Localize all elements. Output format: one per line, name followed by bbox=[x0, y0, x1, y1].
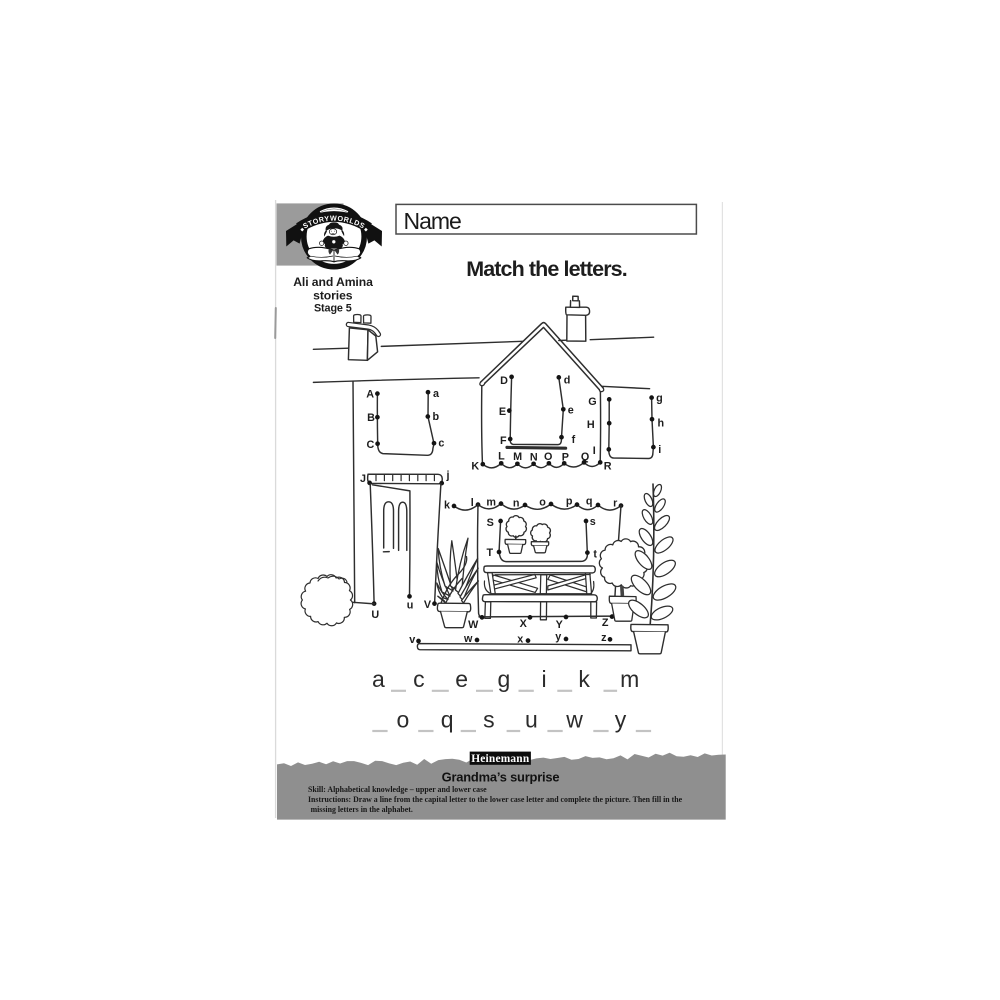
svg-text:c: c bbox=[413, 666, 425, 692]
svg-text:s: s bbox=[590, 516, 596, 528]
svg-text:Ali and Amina: Ali and Amina bbox=[293, 275, 373, 289]
svg-text:c: c bbox=[438, 437, 444, 449]
svg-text:Z: Z bbox=[602, 617, 609, 629]
svg-text:I: I bbox=[593, 445, 596, 457]
svg-text:H: H bbox=[587, 419, 595, 431]
svg-text:h: h bbox=[657, 418, 664, 430]
svg-text:T: T bbox=[486, 547, 493, 559]
svg-text:o: o bbox=[539, 496, 546, 508]
svg-text:k: k bbox=[444, 500, 451, 512]
svg-text:g: g bbox=[656, 393, 663, 405]
svg-text:u: u bbox=[525, 706, 538, 732]
svg-text:Y: Y bbox=[556, 619, 564, 631]
svg-text:M: M bbox=[513, 451, 522, 463]
svg-text:V: V bbox=[424, 599, 432, 611]
svg-text:C: C bbox=[366, 439, 374, 451]
svg-text:w: w bbox=[463, 633, 473, 645]
svg-text:Instructions: Draw a line from: Instructions: Draw a line from the capit… bbox=[308, 795, 683, 804]
svg-text:Skill: Alphabetical knowledge: Skill: Alphabetical knowledge – upper an… bbox=[308, 785, 487, 794]
svg-text:W: W bbox=[468, 619, 479, 631]
svg-text:o: o bbox=[397, 706, 410, 732]
svg-text:missing letters in the alphabe: missing letters in the alphabet. bbox=[311, 805, 413, 814]
svg-text:e: e bbox=[455, 666, 468, 692]
svg-text:Heinemann: Heinemann bbox=[471, 753, 530, 765]
svg-text:p: p bbox=[566, 496, 573, 508]
svg-text:k: k bbox=[578, 666, 590, 692]
svg-text:q: q bbox=[586, 496, 593, 508]
svg-text:s: s bbox=[483, 706, 495, 732]
svg-text:w: w bbox=[565, 706, 583, 732]
svg-text:z: z bbox=[601, 632, 607, 644]
svg-text:A: A bbox=[366, 389, 374, 401]
svg-text:B: B bbox=[367, 412, 375, 424]
svg-text:q: q bbox=[441, 706, 454, 732]
svg-text:X: X bbox=[520, 618, 528, 630]
svg-text:m: m bbox=[620, 666, 639, 692]
svg-text:Grandma’s surprise: Grandma’s surprise bbox=[442, 770, 560, 785]
svg-text:U: U bbox=[371, 609, 379, 621]
svg-text:j: j bbox=[446, 470, 450, 482]
svg-text:Match the letters.: Match the letters. bbox=[466, 257, 627, 281]
svg-text:v: v bbox=[409, 634, 415, 646]
svg-text:a: a bbox=[433, 388, 440, 400]
svg-text:J: J bbox=[360, 473, 366, 485]
svg-text:R: R bbox=[604, 460, 612, 472]
svg-text:G: G bbox=[588, 396, 596, 408]
svg-text:t: t bbox=[593, 548, 597, 560]
svg-text:n: n bbox=[513, 498, 520, 510]
svg-text:d: d bbox=[564, 374, 571, 386]
svg-text:l: l bbox=[471, 497, 474, 509]
svg-text:a: a bbox=[372, 666, 385, 692]
svg-text:i: i bbox=[541, 666, 546, 692]
svg-text:L: L bbox=[498, 451, 505, 463]
svg-text:b: b bbox=[432, 411, 439, 423]
svg-text:stories: stories bbox=[313, 289, 353, 303]
svg-text:Name: Name bbox=[404, 208, 462, 234]
svg-text:D: D bbox=[500, 375, 508, 387]
svg-text:E: E bbox=[499, 406, 506, 418]
svg-text:y: y bbox=[555, 631, 561, 643]
svg-text:y: y bbox=[615, 706, 627, 732]
svg-text:f: f bbox=[572, 434, 576, 446]
svg-text:i: i bbox=[658, 444, 661, 456]
svg-text:S: S bbox=[487, 517, 494, 529]
svg-text:F: F bbox=[500, 435, 507, 447]
svg-text:Stage 5: Stage 5 bbox=[314, 303, 352, 315]
svg-text:e: e bbox=[568, 405, 574, 417]
svg-text:K: K bbox=[471, 460, 479, 472]
svg-text:g: g bbox=[498, 666, 511, 692]
svg-text:u: u bbox=[407, 600, 414, 612]
svg-text:m: m bbox=[486, 497, 496, 509]
